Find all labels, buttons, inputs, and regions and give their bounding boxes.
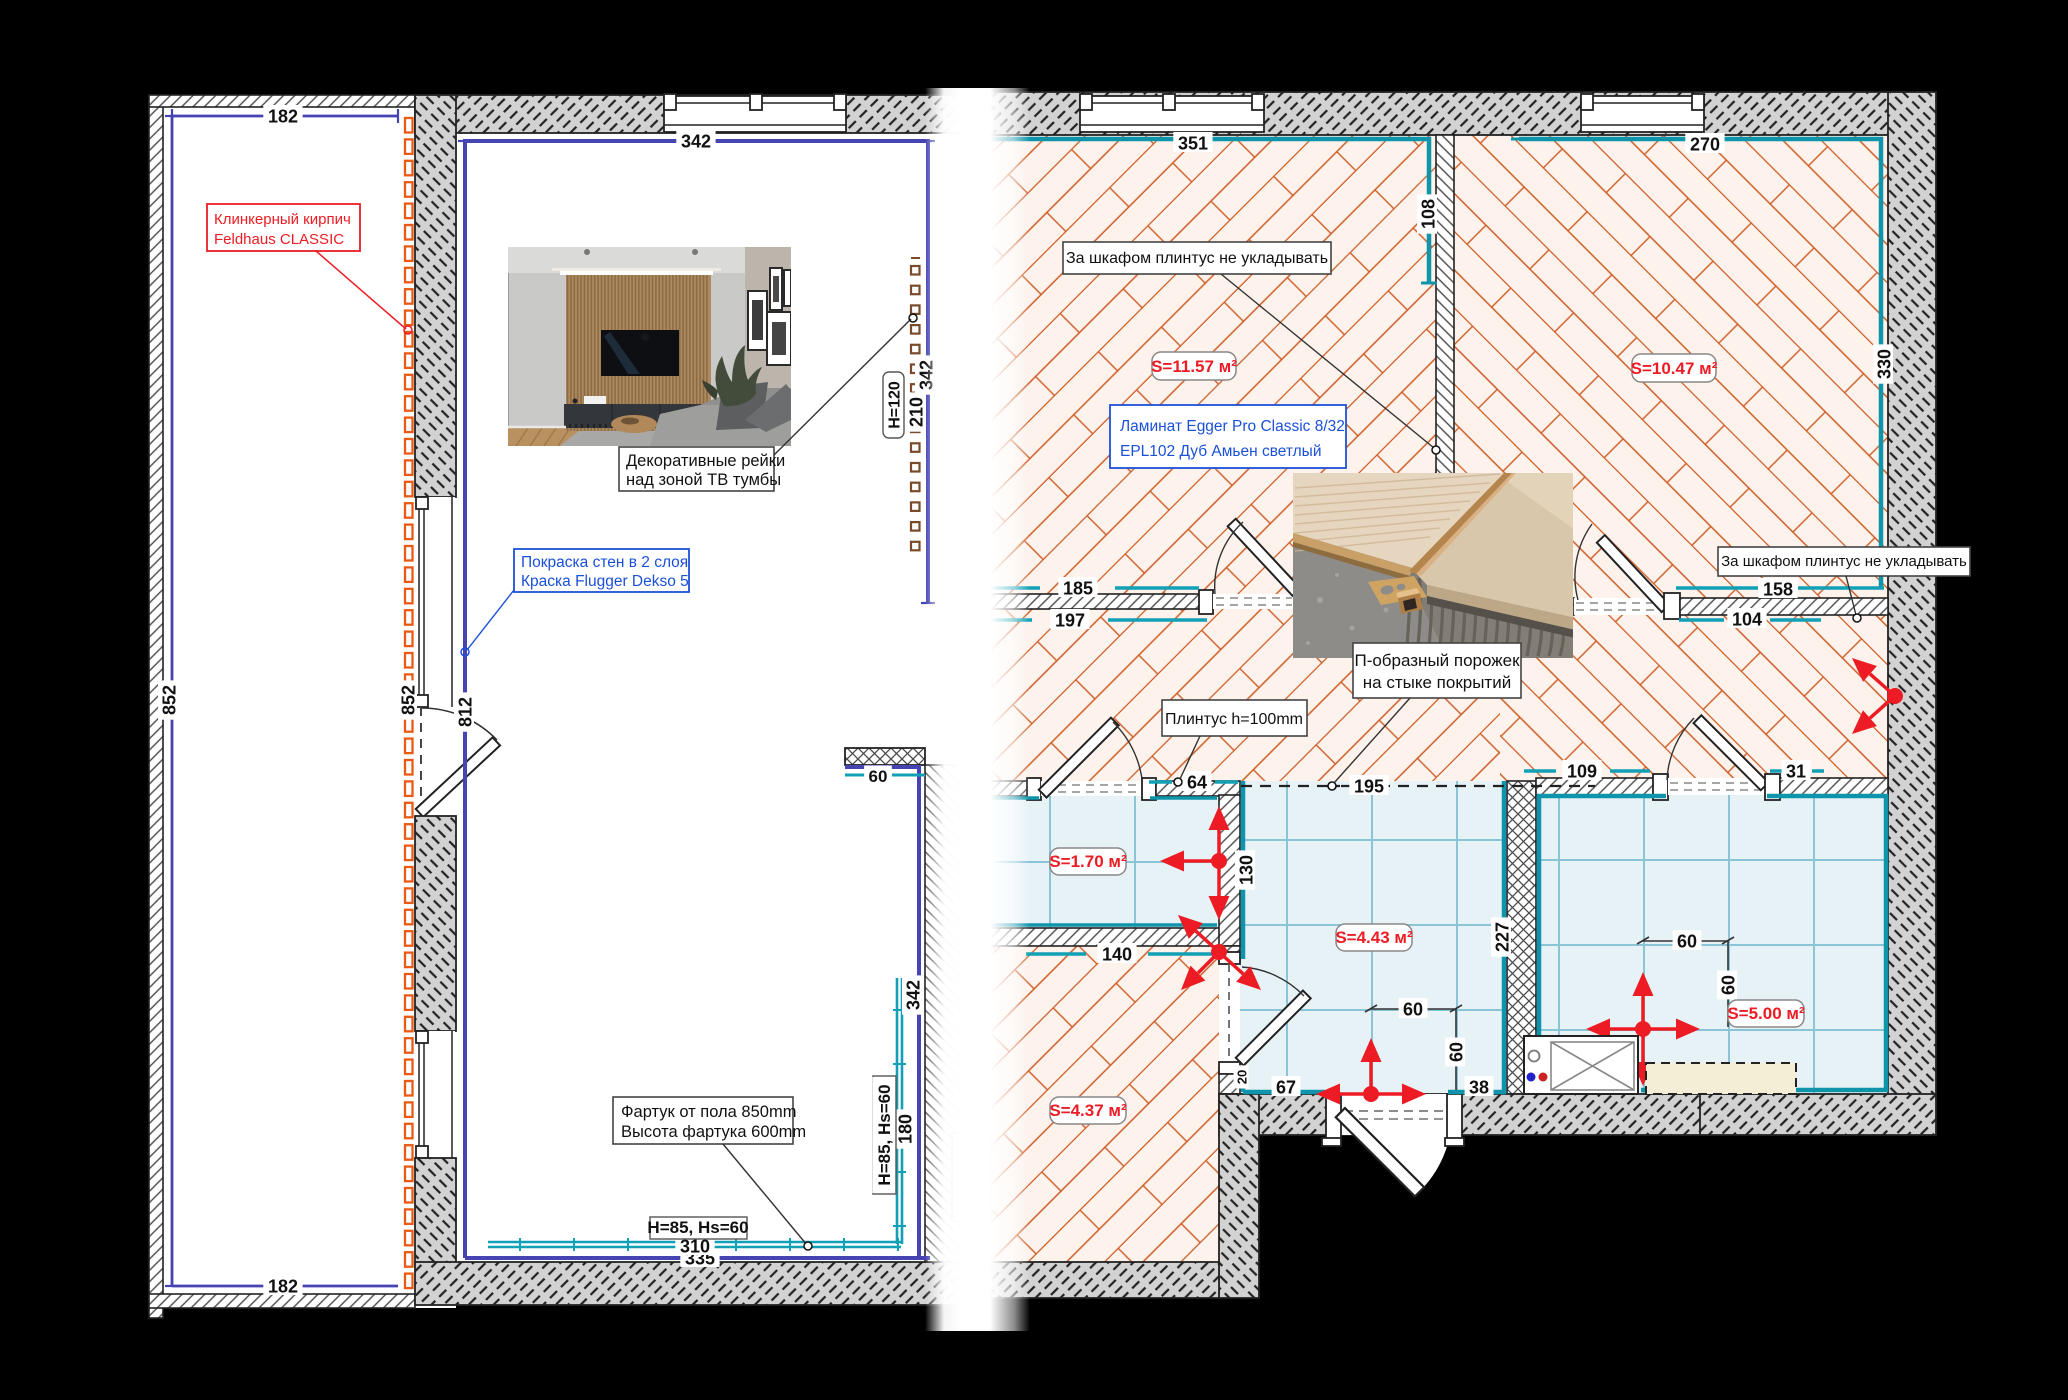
svg-text:За шкафом плинтус не укладыват: За шкафом плинтус не укладывать xyxy=(1721,553,1967,570)
svg-text:140: 140 xyxy=(1102,944,1132,964)
svg-text:60: 60 xyxy=(1403,999,1423,1019)
svg-text:Высота фартука 600mm: Высота фартука 600mm xyxy=(621,1123,806,1141)
svg-text:852: 852 xyxy=(398,685,418,715)
svg-text:Ламинат Egger Pro Classic 8/32: Ламинат Egger Pro Classic 8/32 xyxy=(1120,418,1345,435)
svg-text:За шкафом плинтус не укладыват: За шкафом плинтус не укладывать xyxy=(1066,250,1328,267)
svg-text:31: 31 xyxy=(1786,761,1806,781)
svg-text:Feldhaus CLASSIC: Feldhaus CLASSIC xyxy=(214,231,344,248)
svg-text:108: 108 xyxy=(1418,199,1438,229)
svg-text:Покраска стен в 2 слоя: Покраска стен в 2 слоя xyxy=(521,554,688,571)
svg-text:270: 270 xyxy=(1690,134,1720,154)
svg-text:60: 60 xyxy=(1718,975,1738,995)
svg-text:S=1.70 м²: S=1.70 м² xyxy=(1049,852,1127,871)
svg-text:S=5.00 м²: S=5.00 м² xyxy=(1727,1004,1805,1023)
svg-text:S=4.37 м²: S=4.37 м² xyxy=(1049,1101,1127,1120)
svg-text:330: 330 xyxy=(1874,349,1894,379)
svg-text:S=11.57 м²: S=11.57 м² xyxy=(1151,357,1237,376)
svg-text:П-образный порожек: П-образный порожек xyxy=(1354,651,1520,670)
svg-text:342: 342 xyxy=(681,131,711,151)
svg-text:Фартук от пола 850mm: Фартук от пола 850mm xyxy=(621,1103,796,1121)
svg-text:Декоративные рейки: Декоративные рейки xyxy=(626,452,785,470)
svg-text:67: 67 xyxy=(1276,1077,1296,1097)
svg-text:351: 351 xyxy=(1178,133,1208,153)
svg-text:S=4.43 м²: S=4.43 м² xyxy=(1335,928,1413,947)
svg-text:EPL102 Дуб Амьен светлый: EPL102 Дуб Амьен светлый xyxy=(1120,443,1322,460)
svg-text:185: 185 xyxy=(1063,578,1093,598)
svg-text:на стыке покрытий: на стыке покрытий xyxy=(1363,673,1511,692)
svg-text:182: 182 xyxy=(268,106,298,126)
svg-text:197: 197 xyxy=(1055,610,1085,630)
svg-text:H=85, Hs=60: H=85, Hs=60 xyxy=(647,1218,748,1237)
svg-text:H=120: H=120 xyxy=(887,381,904,429)
svg-text:20: 20 xyxy=(1235,1070,1250,1084)
svg-text:812: 812 xyxy=(455,697,475,727)
svg-text:182: 182 xyxy=(268,1276,298,1296)
svg-text:Плинтус h=100mm: Плинтус h=100mm xyxy=(1165,711,1303,728)
svg-text:60: 60 xyxy=(869,767,888,786)
svg-text:130: 130 xyxy=(1236,855,1256,885)
svg-text:104: 104 xyxy=(1732,609,1762,629)
svg-text:210: 210 xyxy=(906,397,926,427)
svg-text:Клинкерный кирпич: Клинкерный кирпич xyxy=(214,211,351,228)
svg-text:158: 158 xyxy=(1763,579,1793,599)
svg-text:342: 342 xyxy=(903,980,923,1010)
svg-text:227: 227 xyxy=(1492,922,1512,952)
svg-text:S=10.47 м²: S=10.47 м² xyxy=(1631,359,1718,378)
svg-text:60: 60 xyxy=(1677,931,1697,951)
svg-text:852: 852 xyxy=(159,685,179,715)
svg-text:64: 64 xyxy=(1187,772,1207,792)
svg-text:60: 60 xyxy=(1446,1042,1466,1062)
svg-text:над зоной ТВ тумбы: над зоной ТВ тумбы xyxy=(626,471,781,489)
svg-text:H=85, Hs=60: H=85, Hs=60 xyxy=(875,1084,894,1185)
svg-text:Краска Flugger Dekso 5: Краска Flugger Dekso 5 xyxy=(521,573,689,590)
svg-text:109: 109 xyxy=(1567,761,1597,781)
svg-text:38: 38 xyxy=(1469,1077,1489,1097)
svg-text:180: 180 xyxy=(895,1114,915,1144)
svg-text:195: 195 xyxy=(1354,776,1384,796)
